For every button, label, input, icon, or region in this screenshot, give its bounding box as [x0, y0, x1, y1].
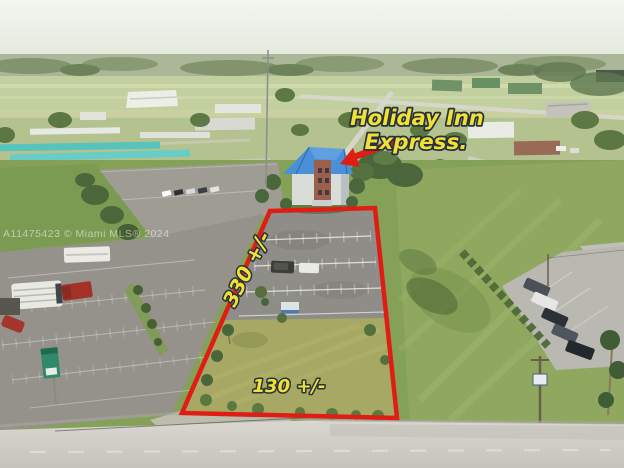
front-dimension-label: 130 +/-: [253, 376, 326, 397]
small-trailer: [281, 302, 299, 313]
aerial-photo: A11475423 © Miami MLS® 2024 Holiday Inn …: [0, 0, 624, 468]
parked-car: [299, 263, 319, 274]
watermark: A11475423 © Miami MLS® 2024: [3, 228, 170, 240]
hotel-label-line1: Holiday Inn: [350, 106, 484, 130]
hotel-label-line2: Express.: [365, 130, 468, 155]
horizon-treeline: [0, 54, 624, 79]
road-sign: [533, 374, 547, 385]
